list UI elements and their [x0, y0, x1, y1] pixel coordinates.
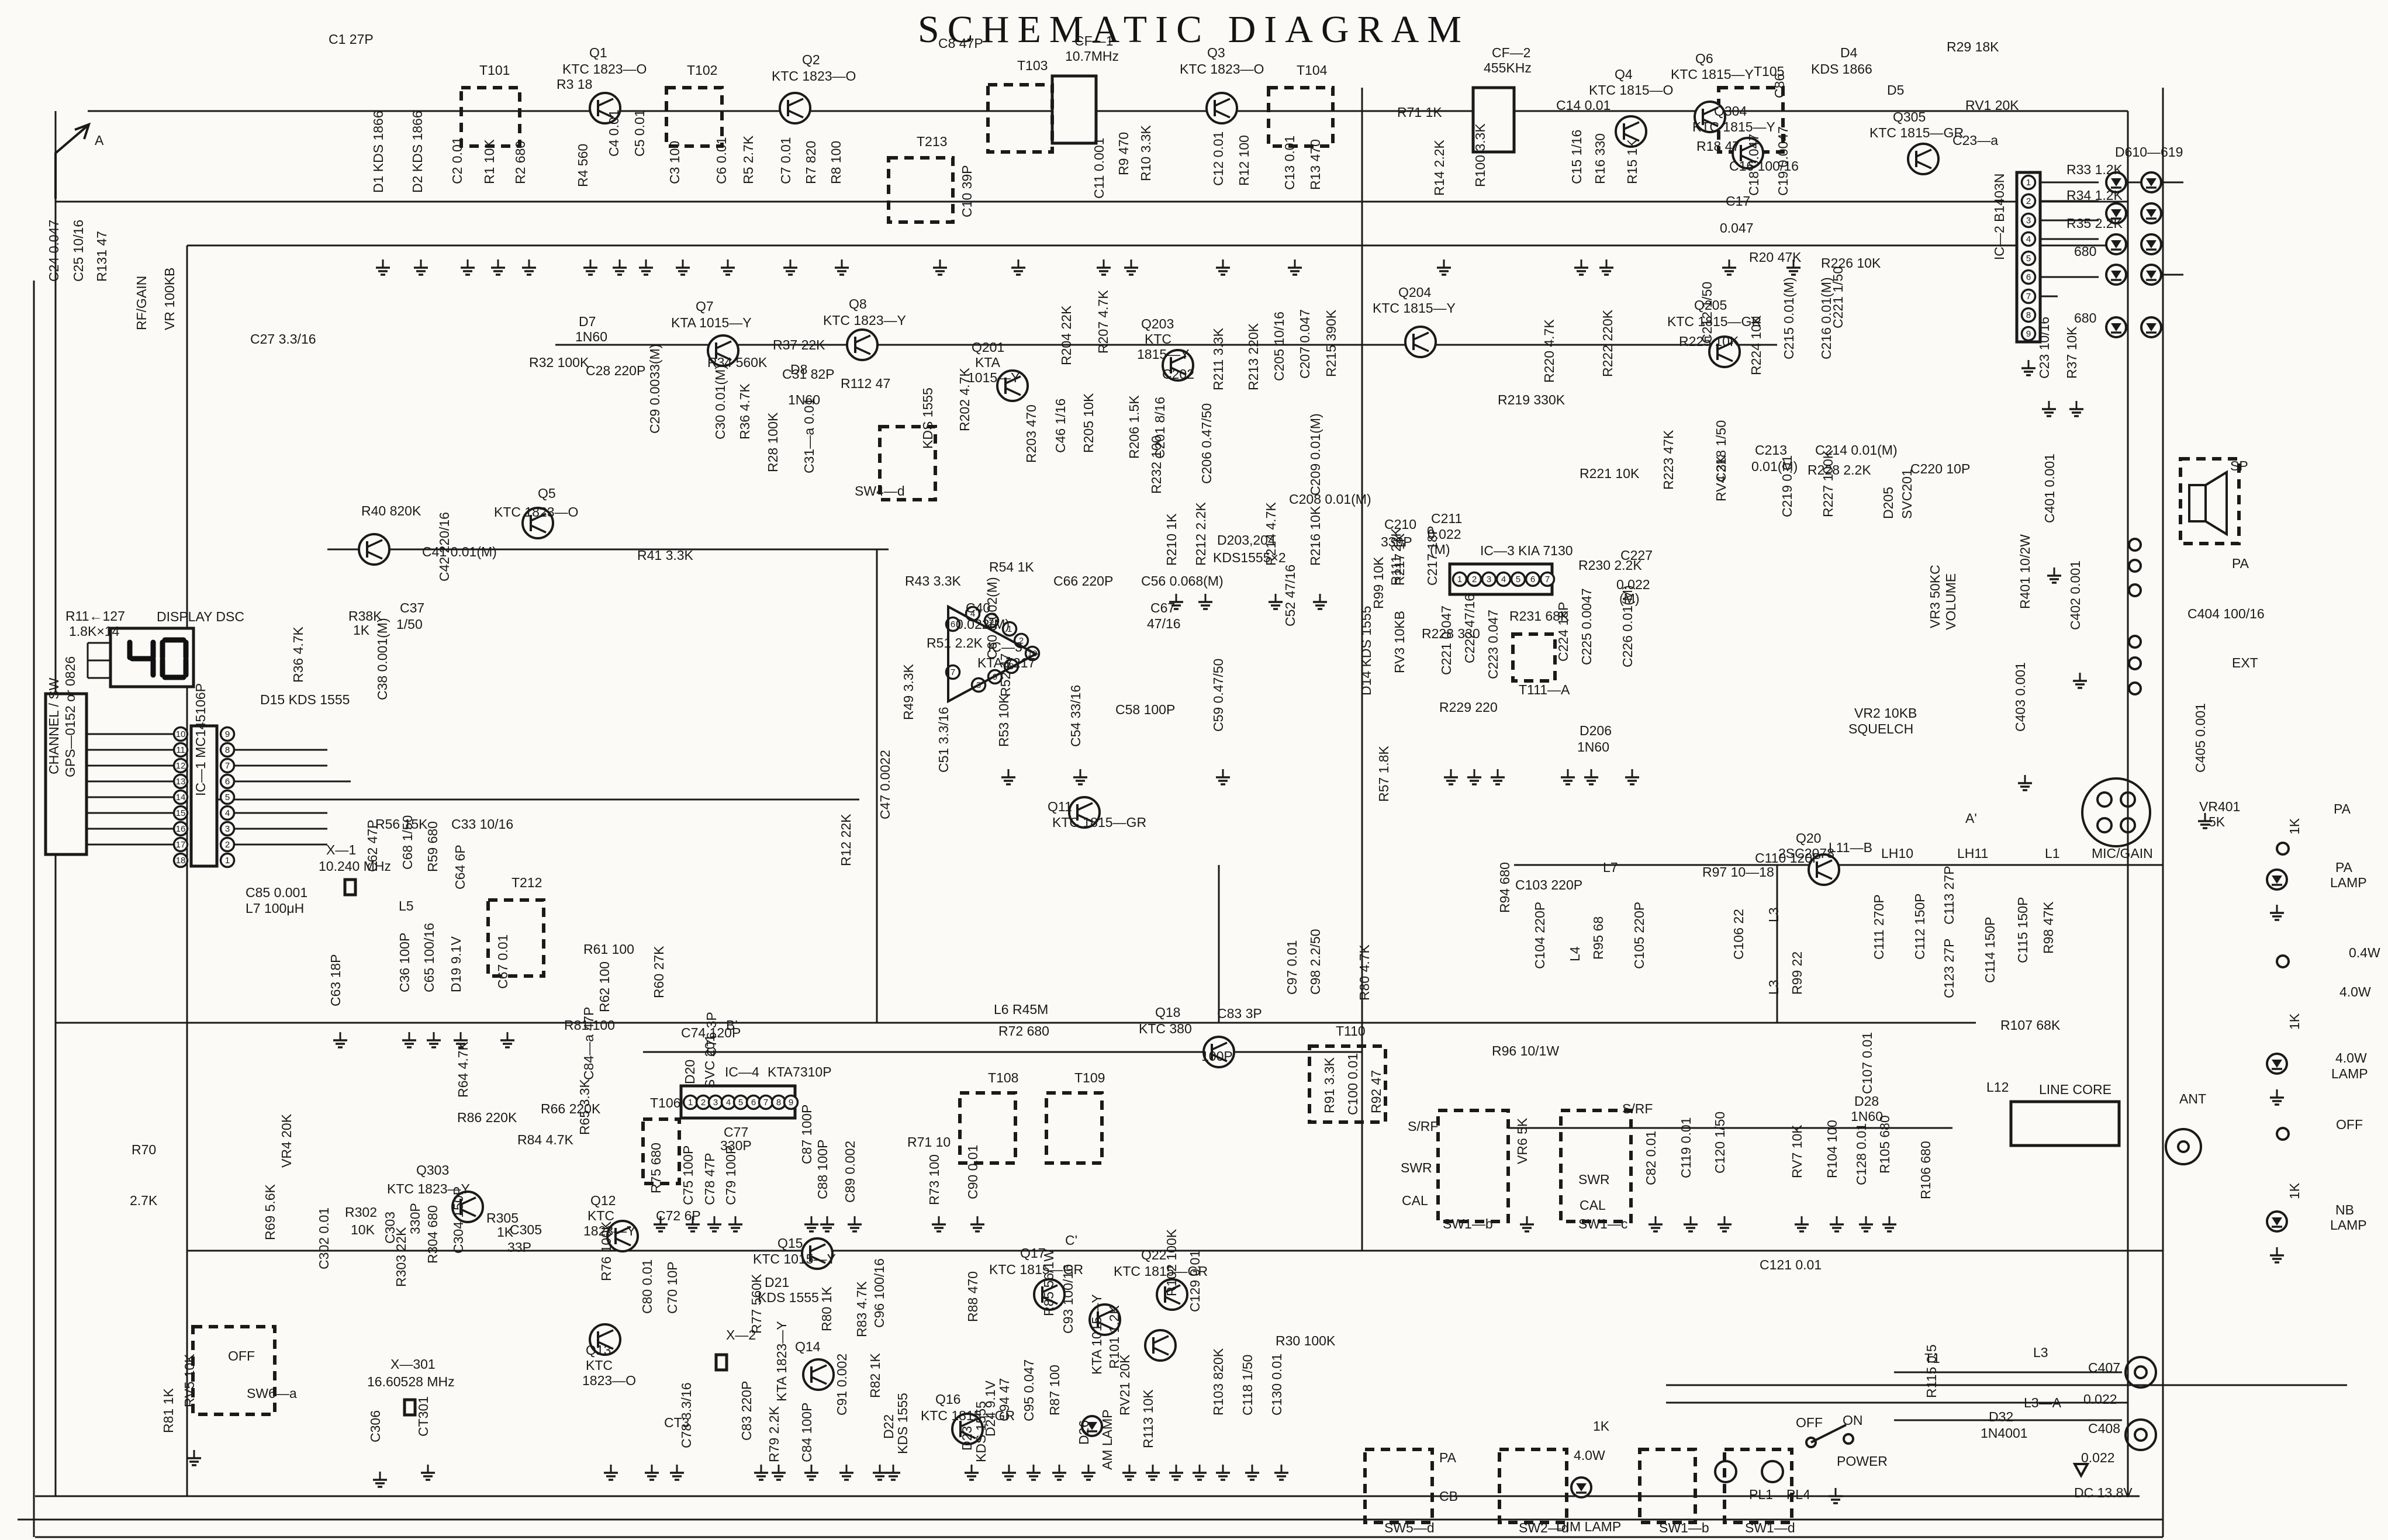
component-label: SP: [2230, 458, 2248, 473]
connector: [2126, 1357, 2156, 1387]
component-label: Q7: [696, 299, 714, 314]
component-label: R95 68: [1591, 916, 1606, 960]
component-label: R102 100K: [1164, 1228, 1179, 1296]
component-label: KTC 1823—O: [772, 68, 856, 84]
ic-pin-number: 6: [225, 777, 230, 787]
ic-pin-number: 5: [1516, 575, 1520, 584]
shield-box: [1046, 1093, 1102, 1163]
component-label: C70 10P: [665, 1261, 680, 1314]
component-label: R98 47K: [2041, 901, 2056, 954]
component-label: C13 0.01: [1282, 136, 1297, 190]
component-label: 0.022: [2083, 1392, 2117, 1407]
shield-box: [1499, 1449, 1567, 1522]
component-label: D24 9.1V: [983, 1380, 998, 1437]
component-label: RV21 20K: [1117, 1354, 1132, 1416]
component-label: D20: [682, 1060, 697, 1084]
component-label: C211: [1431, 511, 1462, 526]
component-label: PA: [1439, 1450, 1457, 1465]
component-label: OFF: [2336, 1117, 2363, 1132]
component-label: C205 10/16: [1271, 312, 1287, 381]
component-label: KTC: [586, 1358, 613, 1373]
connector: [2097, 793, 2111, 807]
component-label: IC—1 MC145106P: [193, 683, 208, 796]
component-label: R131 47: [94, 231, 109, 282]
component-label: KTC: [1145, 331, 1171, 347]
component-label: C75 100P: [680, 1146, 696, 1205]
component-label: DISPLAY DSC: [157, 609, 244, 624]
component-label: C38 0.001(M): [375, 618, 390, 700]
component-label: KTC 1815—O: [1589, 82, 1673, 98]
component-label: PA: [2335, 860, 2353, 875]
component-label: KTC 1823—O: [562, 61, 647, 77]
component-label: C114 150P: [1982, 917, 1998, 983]
component-label: KTC 1815—GR: [1869, 125, 1964, 140]
component-label: C105 220P: [1632, 902, 1647, 969]
ic-pin-number: 6: [2026, 272, 2031, 282]
component-label: C223 0.047: [1485, 610, 1501, 679]
component-label: C41 0.01(M): [422, 544, 497, 559]
component-label: KDS 1555: [895, 1393, 910, 1454]
component-label: C227: [1620, 548, 1653, 563]
component-label: R97 10—18: [1702, 864, 1774, 880]
component-label: R60 27K: [651, 946, 666, 998]
component-label: R59 680: [425, 821, 440, 872]
component-label: T213: [917, 134, 947, 149]
component-label: 0.022: [2081, 1450, 2115, 1465]
component-label: R51 2.2K: [927, 635, 983, 650]
shield-box: [988, 85, 1052, 152]
component-label: C208 0.01(M): [1289, 492, 1371, 507]
component-label: C31—a 0.01: [801, 398, 817, 473]
component-label: Q15: [777, 1236, 803, 1251]
component-label: KTC 1823—Y: [823, 313, 906, 328]
component-label: C64 6P: [452, 845, 468, 890]
component-label: C107 0.01: [1860, 1032, 1875, 1094]
component-label: KTC 1815—Y: [1692, 119, 1775, 134]
component-label: C202: [1162, 366, 1194, 382]
transistor: [1207, 93, 1237, 123]
component-label: IC—4: [725, 1064, 759, 1079]
component-label: C305: [510, 1222, 542, 1237]
component-label: C90 0.01: [965, 1145, 980, 1199]
component-label: C28 220P: [586, 363, 645, 378]
component-label: C24 0.047: [46, 220, 61, 282]
component-label: C85 0.001: [246, 885, 307, 900]
component-label: L3: [2033, 1345, 2048, 1360]
component-label: Q2: [802, 52, 820, 67]
component-label: X—301: [390, 1356, 436, 1372]
component-label: C221 0.047: [1439, 605, 1454, 675]
component-label: L3—A: [2024, 1395, 2062, 1410]
component-label: C408: [2088, 1421, 2120, 1436]
component-label: NB: [2335, 1202, 2354, 1217]
component-label: C59 0.47/50: [1211, 659, 1226, 732]
component-label: R88 470: [965, 1271, 980, 1322]
component-label: C37: [400, 600, 424, 615]
component-label: L11—B: [1829, 840, 1872, 855]
component-label: D19 9.1V: [448, 936, 464, 992]
component-label: 33P: [507, 1240, 531, 1255]
component-label: Q305: [1893, 109, 1926, 124]
component-label: C47 0.0022: [877, 750, 893, 819]
symbol-path: [2189, 472, 2227, 534]
component-label: KTC 1815—Y: [1671, 67, 1754, 82]
component-label: C206 0.47/50: [1199, 403, 1214, 484]
component-label: R3 18: [557, 77, 592, 92]
component-label: C65 100/16: [421, 923, 437, 992]
component-label: 1K: [1593, 1418, 1610, 1434]
component-label: L3: [1766, 980, 1781, 995]
component-label: R207 4.7K: [1095, 290, 1111, 354]
component-label: R100 3.3K: [1473, 123, 1488, 187]
component-label: Q204: [1398, 285, 1431, 300]
component-label: SWR: [1578, 1172, 1610, 1187]
component-label: C123 27P: [1941, 939, 1957, 998]
component-label: C86: [1772, 74, 1787, 98]
component-label: 455KHz: [1484, 60, 1532, 75]
component-label: Q201: [972, 340, 1004, 355]
component-label: R229 220: [1439, 700, 1498, 715]
component-label: C215 0.01(M): [1781, 277, 1796, 359]
component-label: C100 0.01: [1345, 1053, 1360, 1115]
component-label: C6 0.01: [714, 137, 729, 184]
component-label: R91 3.3K: [1322, 1057, 1337, 1113]
component-label: C401 0.001: [2042, 454, 2057, 523]
component-label: R87 100: [1047, 1365, 1062, 1416]
component-box: [345, 880, 355, 895]
component-label: R215 390K: [1323, 309, 1339, 377]
shield-box: [1513, 634, 1555, 681]
component-label: C12 0.01: [1211, 131, 1226, 186]
component-label: 10.7MHz: [1065, 49, 1119, 64]
component-label: R113 10K: [1141, 1389, 1156, 1448]
ic-pin-number: 4: [726, 1098, 731, 1108]
component-label: C79 100P: [723, 1146, 738, 1205]
component-label: C113 27P: [1941, 866, 1957, 925]
component-label: R80 4.7K: [1357, 944, 1372, 1001]
component-label: C54 33/16: [1068, 685, 1083, 747]
component-label: R69 5.6K: [262, 1183, 278, 1240]
component-label: R36 4.7K: [291, 626, 306, 683]
ic-pin-number: 7: [225, 761, 230, 771]
component-label: R204 22K: [1059, 305, 1074, 365]
component-label: C8 47P: [938, 36, 983, 51]
component-label: LH10: [1881, 846, 1913, 861]
transistor: [1145, 1330, 1176, 1361]
component-label: POWER: [1837, 1454, 1888, 1469]
component-label: C67: [1150, 600, 1175, 615]
transistor: [803, 1359, 834, 1390]
component-label: R5 2.7K: [741, 135, 756, 184]
component-label: R227 100K: [1820, 449, 1836, 517]
connector: [2129, 560, 2141, 572]
component-label: R99 10K: [1371, 556, 1386, 609]
component-label: R64 4.7K: [455, 1041, 471, 1098]
component-label: R36 4.7K: [737, 383, 752, 439]
connector: [2129, 584, 2141, 596]
component-label: C212 1/50: [1699, 282, 1715, 344]
component-label: T109: [1074, 1070, 1105, 1085]
component-label: 1/50: [396, 617, 423, 632]
ic-pin-number: 6: [1530, 575, 1535, 584]
component-label: R107 68K: [2000, 1018, 2061, 1033]
component-label: R203 470: [1024, 404, 1039, 463]
component-label: C7 0.01: [778, 137, 793, 184]
component-label: CAL: [1580, 1198, 1606, 1213]
component-label: C18 0.047: [1746, 134, 1761, 196]
shield-box: [889, 158, 953, 222]
component-label: GPS—0152 or 0826: [63, 656, 78, 777]
component-label: SVC201: [1899, 469, 1914, 519]
component-label: R7 820: [803, 141, 818, 184]
connector: [2135, 1366, 2147, 1378]
schematic-canvas: SCHEMATIC DIAGRAM 1011121314151617189876…: [0, 0, 2388, 1540]
component-label: C219 0.01: [1779, 455, 1795, 517]
component-label: DIM LAMP: [1556, 1519, 1621, 1534]
component-box: [2011, 1102, 2119, 1146]
transistor: [1405, 327, 1436, 357]
component-label: C115 150P: [2015, 897, 2030, 963]
connector: [2129, 683, 2141, 694]
shield-box: [461, 88, 520, 146]
component-label: C217 18P: [1425, 526, 1440, 586]
component-label: R94 680: [1497, 862, 1512, 913]
component-label: C42 220/16: [437, 512, 452, 582]
component-label: R34 560K: [707, 355, 768, 370]
ic-pin-number: 6: [951, 620, 955, 629]
component-label: 10K: [351, 1222, 375, 1237]
component-label: X—1: [326, 842, 356, 857]
component-label: C224 18P: [1556, 602, 1571, 662]
component-label: R72 680: [998, 1023, 1049, 1039]
component-label: R11←127: [65, 608, 125, 624]
connector: [2135, 1429, 2147, 1441]
component-label: KDS 1866: [1811, 61, 1872, 77]
component-label: Q18: [1155, 1005, 1180, 1020]
ic-pin-number: 2: [2026, 196, 2031, 206]
component-label: R28 100K: [765, 412, 780, 472]
component-label: 1.8K×14: [69, 624, 120, 639]
component-label: DC 13.8V: [2074, 1485, 2133, 1500]
component-label: C72 6P: [656, 1208, 701, 1223]
component-label: A: [95, 133, 104, 148]
component-label: R20 47K: [1749, 250, 1802, 265]
transistor: [359, 534, 389, 565]
component-label: KDS 1555: [758, 1290, 819, 1305]
component-label: R2 680: [513, 141, 528, 184]
ic-pin-number: 11: [176, 745, 185, 755]
component-label: 1815—Y: [1137, 347, 1190, 362]
ic-pin-number: 1: [2026, 178, 2031, 188]
component-label: C91 0.002: [834, 1354, 849, 1416]
component-label: 10.240 MHz: [319, 859, 391, 874]
component-label: R12 22K: [838, 814, 853, 866]
component-label: S/RF: [1408, 1119, 1438, 1134]
connector: [2097, 818, 2111, 832]
component-label: SW5—d: [1384, 1520, 1435, 1535]
component-label: C3 100: [667, 141, 682, 184]
component-label: KTC: [588, 1208, 614, 1223]
component-label: C220 10P: [1910, 461, 1970, 476]
component-label: C76 3P: [704, 1012, 719, 1057]
component-label: D4: [1840, 45, 1858, 60]
component-label: C11 0.001: [1091, 138, 1107, 199]
component-label: T110: [1336, 1023, 1366, 1039]
component-label: KTA 1015—Y: [671, 315, 752, 330]
ic-pin-number: 10: [176, 729, 186, 739]
component-label: R29 18K: [1947, 39, 1999, 54]
component-label: LAMP: [2330, 1217, 2367, 1233]
component-label: C111 270P: [1871, 894, 1886, 960]
component-label: R15 1K: [1625, 139, 1640, 184]
component-label: VR401: [2199, 799, 2240, 814]
component-label: C130 0.01: [1269, 1354, 1284, 1416]
component-label: IC—2 B1403N: [1992, 174, 2007, 260]
component-label: R83 4.7K: [854, 1281, 869, 1337]
component-label: 0.022(M): [956, 617, 1010, 632]
transistor: [847, 330, 877, 360]
component-label: KTC 1815—GR: [1052, 815, 1146, 830]
component-label: R211 3.3K: [1211, 327, 1226, 390]
component-label: CT301: [416, 1396, 431, 1437]
transistor: [1908, 144, 1938, 174]
component-label: R43 3.3K: [905, 573, 962, 589]
component-label: T104: [1297, 63, 1328, 78]
component-label: R4 560: [575, 144, 590, 187]
ic-pin-number: 8: [225, 745, 230, 755]
component-label: R96 10/1W: [1492, 1043, 1559, 1058]
ic-pin-number: 17: [176, 840, 186, 850]
component-label: C78 47P: [702, 1153, 717, 1205]
connector: [2277, 956, 2289, 967]
component-label: D21: [765, 1275, 789, 1290]
component-label: R41 3.3K: [637, 548, 694, 563]
component-label: SW1—d: [1745, 1520, 1795, 1535]
component-label: 1N60: [1851, 1109, 1883, 1124]
component-label: C25 10/16: [71, 220, 86, 282]
ic-pin-number: 2: [1472, 575, 1477, 584]
component-label: C5 0.01: [632, 109, 647, 157]
ic-pin-number: 4: [2026, 234, 2031, 244]
component-label: IC—3: [988, 639, 1022, 655]
component-label: C221 1/50: [1830, 267, 1846, 328]
page-title: SCHEMATIC DIAGRAM: [918, 8, 1470, 51]
component-label: R224 10K: [1748, 315, 1764, 375]
component-label: C51 3.3/16: [936, 707, 951, 773]
component-label: LH11: [1957, 846, 1988, 861]
component-label: 4.0W: [2339, 984, 2371, 999]
component-label: C103 220P: [1515, 877, 1582, 892]
ic-pin-number: 4: [1501, 575, 1506, 584]
component-label: 1K: [353, 622, 370, 638]
component-label: Q11: [1048, 799, 1072, 814]
component-label: C63 18P: [328, 954, 343, 1006]
component-label: R10 3.3K: [1138, 124, 1153, 181]
component-label: AM LAMP: [1100, 1409, 1115, 1470]
component-label: R18 47: [1696, 139, 1740, 154]
component-label: C121 0.01: [1760, 1257, 1822, 1272]
component-label: C33 10/16: [451, 816, 513, 832]
component-label: C106 22: [1731, 909, 1746, 960]
connector: [2129, 657, 2141, 669]
ic-pin-number: 2: [225, 840, 230, 850]
component-label: R205 10K: [1081, 393, 1096, 453]
component-label: C27 3.3/16: [250, 331, 316, 347]
component-label: CAL: [1402, 1193, 1428, 1208]
ic-pin-number: 7: [763, 1098, 768, 1108]
component-label: T102: [687, 63, 717, 78]
ic-pin-number: 5: [738, 1098, 743, 1108]
component-label: R81 1K: [161, 1388, 176, 1433]
component-label: R92 47: [1368, 1070, 1384, 1113]
component-label: KTA7310P: [768, 1064, 832, 1079]
ic-pin-number: 18: [176, 856, 186, 866]
component-label: R86 220K: [457, 1110, 517, 1125]
component-label: C207 0.047: [1297, 309, 1312, 379]
component-box: [716, 1355, 727, 1370]
component-label: IC—3 KIA 7130: [1480, 543, 1573, 558]
component-label: R33 1.2K: [2066, 162, 2123, 177]
component-label: 1N60: [788, 392, 820, 407]
component-label: D14 KDS 1555: [1359, 606, 1374, 695]
component-label: SW6—a: [247, 1386, 297, 1401]
connector: [2126, 1420, 2156, 1450]
component-label: RV3 10KB: [1392, 611, 1407, 673]
component-label: 680: [2074, 244, 2096, 259]
component-label: LAMP: [2331, 1066, 2368, 1081]
component-label: D610—619: [2115, 144, 2183, 160]
component-label: D15 KDS 1555: [260, 692, 350, 707]
component-label: R16 330: [1592, 133, 1608, 184]
connector: [2129, 539, 2141, 551]
component-label: 1K: [2287, 1182, 2302, 1199]
component-label: R232 100: [1149, 435, 1164, 494]
component-label: Q304: [1714, 103, 1747, 119]
component-label: KTC 1015—Y: [753, 1251, 836, 1266]
component-label: CHANNEL / SW: [46, 677, 61, 774]
component-label: C10 39P: [959, 165, 974, 217]
component-label: R73 100: [927, 1154, 942, 1205]
ic-pin-number: 1: [688, 1098, 693, 1108]
component-label: D23: [959, 1426, 974, 1451]
component-label: VR4 20K: [279, 1113, 294, 1168]
ic-pin-number: 2: [701, 1098, 706, 1108]
component-label: R223 47K: [1661, 430, 1676, 490]
component-label: T106: [650, 1095, 680, 1110]
ic-pin-number: 12: [176, 761, 186, 771]
component-label: R30 100K: [1276, 1333, 1336, 1348]
component-label: C46 1/16: [1053, 399, 1068, 453]
component-label: ANT: [2179, 1091, 2206, 1106]
component-label: Q4: [1615, 67, 1633, 82]
component-label: T111—A: [1519, 682, 1570, 697]
wires-layer: [18, 88, 2347, 1537]
component-label: R206 1.5K: [1126, 395, 1142, 459]
component-label: Q16: [935, 1392, 960, 1407]
component-label: C19 0.0047: [1775, 126, 1791, 196]
component-label: R212 2.2K: [1193, 502, 1208, 566]
component-label: KTA 1823—Y: [774, 1321, 789, 1401]
component-label: Q22: [1141, 1247, 1166, 1262]
component-label: C15 1/16: [1569, 130, 1584, 184]
component-label: L7 100μH: [246, 901, 304, 916]
component-label: R77 560K: [749, 1273, 764, 1334]
component-label: R71 1K: [1397, 105, 1442, 120]
component-label: R303 22K: [393, 1227, 409, 1287]
component-label: VR6 5K: [1515, 1117, 1530, 1164]
connector: [2129, 636, 2141, 648]
component-label: CB: [1439, 1489, 1458, 1504]
